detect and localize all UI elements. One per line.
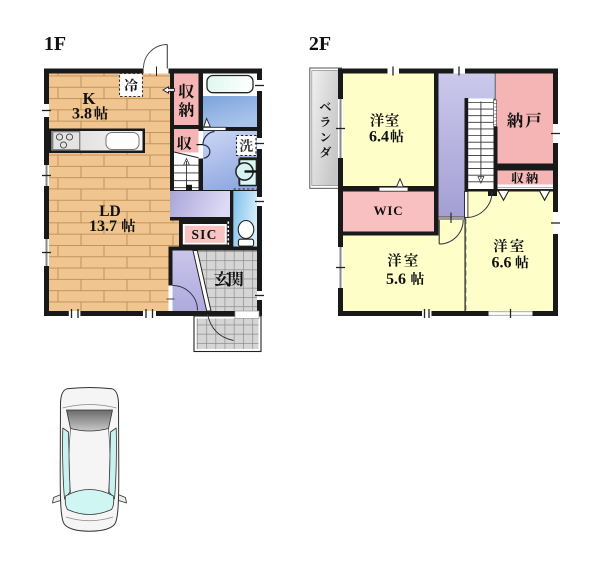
svg-text:2F: 2F — [309, 33, 331, 55]
svg-text:6.4: 6.4 — [369, 129, 389, 146]
svg-text:5.6: 5.6 — [386, 271, 406, 288]
svg-text:SIC: SIC — [191, 227, 217, 242]
svg-text:6.6: 6.6 — [492, 255, 512, 272]
svg-text:13.7: 13.7 — [89, 218, 117, 235]
svg-text:3.8: 3.8 — [72, 106, 92, 123]
svg-text:WIC: WIC — [374, 203, 404, 218]
svg-text:1F: 1F — [44, 33, 66, 55]
